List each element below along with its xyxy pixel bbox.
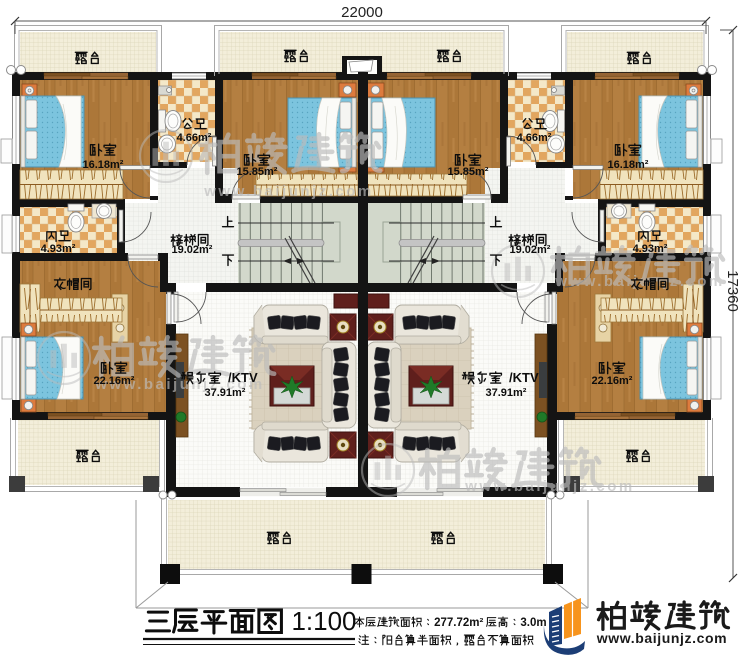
svg-text:4.93m²: 4.93m² xyxy=(41,243,76,255)
svg-text:15.85m²: 15.85m² xyxy=(237,166,278,178)
svg-text:www.baijunjz.com: www.baijunjz.com xyxy=(596,630,727,646)
svg-text:277.72m²: 277.72m² xyxy=(434,617,483,629)
svg-text:4.66m²: 4.66m² xyxy=(517,132,552,144)
svg-text:22.16m²: 22.16m² xyxy=(592,375,633,387)
svg-text:4.93m²: 4.93m² xyxy=(633,243,668,255)
svg-text:www.baijunjz.com: www.baijunjz.com xyxy=(203,183,373,200)
svg-text:/KTV: /KTV xyxy=(509,370,539,385)
svg-text:16.18m²: 16.18m² xyxy=(83,159,124,171)
svg-text:15.85m²: 15.85m² xyxy=(448,166,489,178)
svg-text:22.16m²: 22.16m² xyxy=(94,375,135,387)
svg-text:19.02m²: 19.02m² xyxy=(510,244,551,256)
svg-text:17360: 17360 xyxy=(724,270,741,312)
svg-text:37.91m²: 37.91m² xyxy=(486,387,527,399)
svg-text:4.66m²: 4.66m² xyxy=(177,132,212,144)
svg-text:3.0m: 3.0m xyxy=(520,617,546,629)
svg-text:16.18m²: 16.18m² xyxy=(608,159,649,171)
svg-text:37.91m²: 37.91m² xyxy=(205,387,246,399)
svg-text:1:100: 1:100 xyxy=(291,606,356,636)
svg-text:www.baijunjz.com: www.baijunjz.com xyxy=(464,478,634,495)
svg-text:19.02m²: 19.02m² xyxy=(172,244,213,256)
svg-text:22000: 22000 xyxy=(341,4,383,21)
svg-text:/KTV: /KTV xyxy=(228,370,258,385)
